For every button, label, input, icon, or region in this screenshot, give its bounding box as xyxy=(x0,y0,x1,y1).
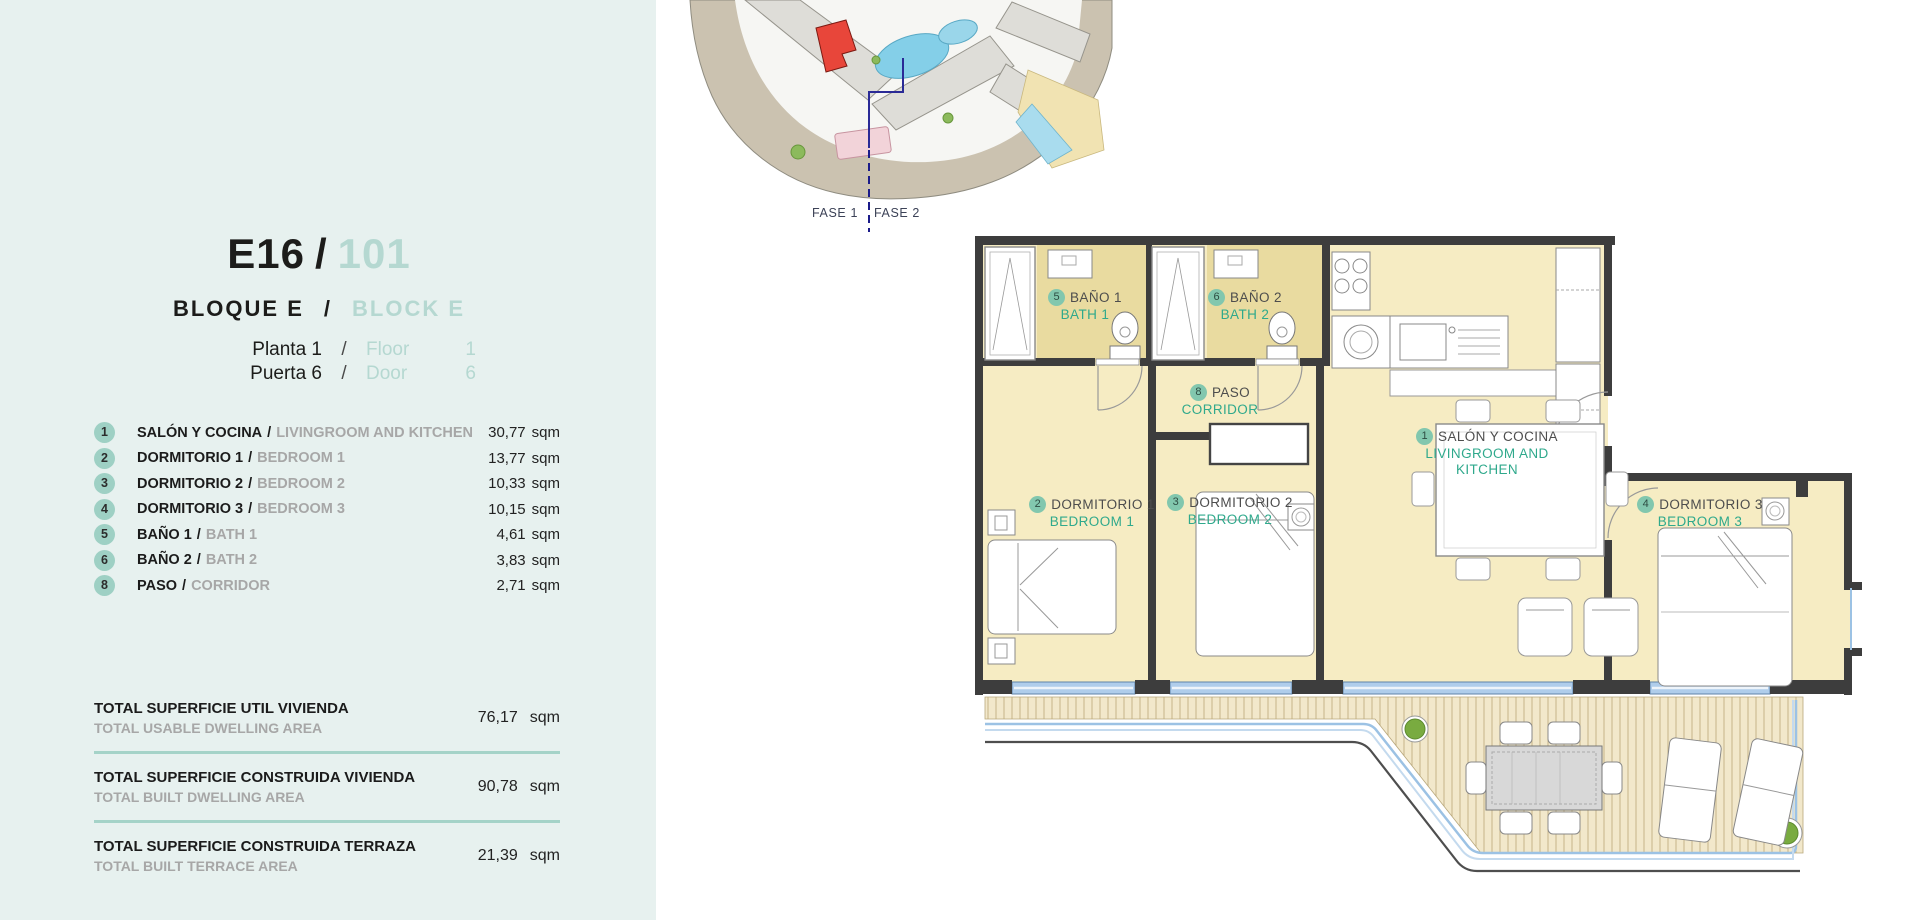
plan-label-salon: 1SALÓN Y COCINA LIVINGROOM AND KITCHEN xyxy=(1402,428,1572,478)
block-en: BLOCK E xyxy=(352,296,465,321)
plan-label-bedroom1: 2DORMITORIO 1 BEDROOM 1 xyxy=(1022,496,1162,530)
totals-section: TOTAL SUPERFICIE UTIL VIVIENDA TOTAL USA… xyxy=(94,700,560,874)
unit-number: 101 xyxy=(338,230,411,277)
room-badge: 5 xyxy=(94,524,115,545)
room-list: 1 SALÓN Y COCINA/LIVINGROOM AND KITCHEN … xyxy=(94,420,560,599)
room-row-bedroom3: 4 DORMITORIO 3/BEDROOM 3 10,15sqm xyxy=(94,497,560,523)
door-number: 6 xyxy=(442,362,476,386)
room-area: 10,33sqm xyxy=(488,475,560,492)
plan-label-bath2: 6BAÑO 2 BATH 2 xyxy=(1185,289,1305,323)
fase2-label: FASE 2 xyxy=(874,206,920,220)
sliding-door-pocket xyxy=(1210,424,1308,464)
door-es: Puerta 6 xyxy=(162,362,322,386)
unit-title: E16/101 xyxy=(78,230,560,278)
room-badge: 2 xyxy=(94,448,115,469)
block-line: BLOQUE E/BLOCK E xyxy=(78,296,560,322)
unit-code: E16 xyxy=(227,230,305,277)
floor-plan xyxy=(975,236,1862,871)
door-en: Door xyxy=(366,362,442,386)
room-badge: 1 xyxy=(94,422,115,443)
dining-set xyxy=(1412,400,1628,580)
site-plan xyxy=(690,0,1112,232)
room-row-salon: 1 SALÓN Y COCINA/LIVINGROOM AND KITCHEN … xyxy=(94,420,560,446)
plan-label-bath1: 5BAÑO 1 BATH 1 xyxy=(1025,289,1145,323)
divider xyxy=(94,820,560,823)
floor-es: Planta 1 xyxy=(162,338,322,362)
window-glazing xyxy=(1012,682,1770,694)
room-row-bedroom2: 3 DORMITORIO 2/BEDROOM 2 10,33sqm xyxy=(94,471,560,497)
total-value: 21,39sqm xyxy=(478,847,560,865)
plan-label-bedroom2: 3DORMITORIO 2 BEDROOM 2 xyxy=(1160,494,1300,528)
room-row-bedroom1: 2 DORMITORIO 1/BEDROOM 1 13,77sqm xyxy=(94,446,560,472)
plan-label-bedroom3: 4DORMITORIO 3 BEDROOM 3 xyxy=(1630,496,1770,530)
room-area: 2,71sqm xyxy=(496,577,560,594)
title-separator: / xyxy=(315,230,328,277)
room-badge: 4 xyxy=(94,499,115,520)
room-row-bath1: 5 BAÑO 1/BATH 1 4,61sqm xyxy=(94,522,560,548)
terrace-deck xyxy=(985,697,1804,871)
room-area: 3,83sqm xyxy=(496,552,560,569)
room-area: 30,77sqm xyxy=(488,424,560,441)
room-badge: 8 xyxy=(94,575,115,596)
room-row-bath2: 6 BAÑO 2/BATH 2 3,83sqm xyxy=(94,548,560,574)
total-built-terrace: TOTAL SUPERFICIE CONSTRUIDA TERRAZA TOTA… xyxy=(94,838,560,874)
room-badge: 6 xyxy=(94,550,115,571)
door-line: Puerta 6 / Door 6 xyxy=(78,362,560,386)
room-area: 10,15sqm xyxy=(488,501,560,518)
floor-en: Floor xyxy=(366,338,442,362)
room-area: 13,77sqm xyxy=(488,450,560,467)
divider xyxy=(94,751,560,754)
fase1-label: FASE 1 xyxy=(806,206,858,220)
info-panel: E16/101 BLOQUE E/BLOCK E Planta 1 / Floo… xyxy=(0,0,656,920)
room-badge: 3 xyxy=(94,473,115,494)
total-value: 76,17sqm xyxy=(478,709,560,727)
block-es: BLOQUE E xyxy=(173,296,304,321)
room-row-corridor: 8 PASO/CORRIDOR 2,71sqm xyxy=(94,573,560,599)
plan-label-corridor: 8PASO CORRIDOR xyxy=(1160,384,1280,418)
floor-line: Planta 1 / Floor 1 xyxy=(78,338,560,362)
room-area: 4,61sqm xyxy=(496,526,560,543)
total-usable-area: TOTAL SUPERFICIE UTIL VIVIENDA TOTAL USA… xyxy=(94,700,560,736)
total-built-dwelling: TOTAL SUPERFICIE CONSTRUIDA VIVIENDA TOT… xyxy=(94,769,560,805)
floor-number: 1 xyxy=(442,338,476,362)
total-value: 90,78sqm xyxy=(478,778,560,796)
